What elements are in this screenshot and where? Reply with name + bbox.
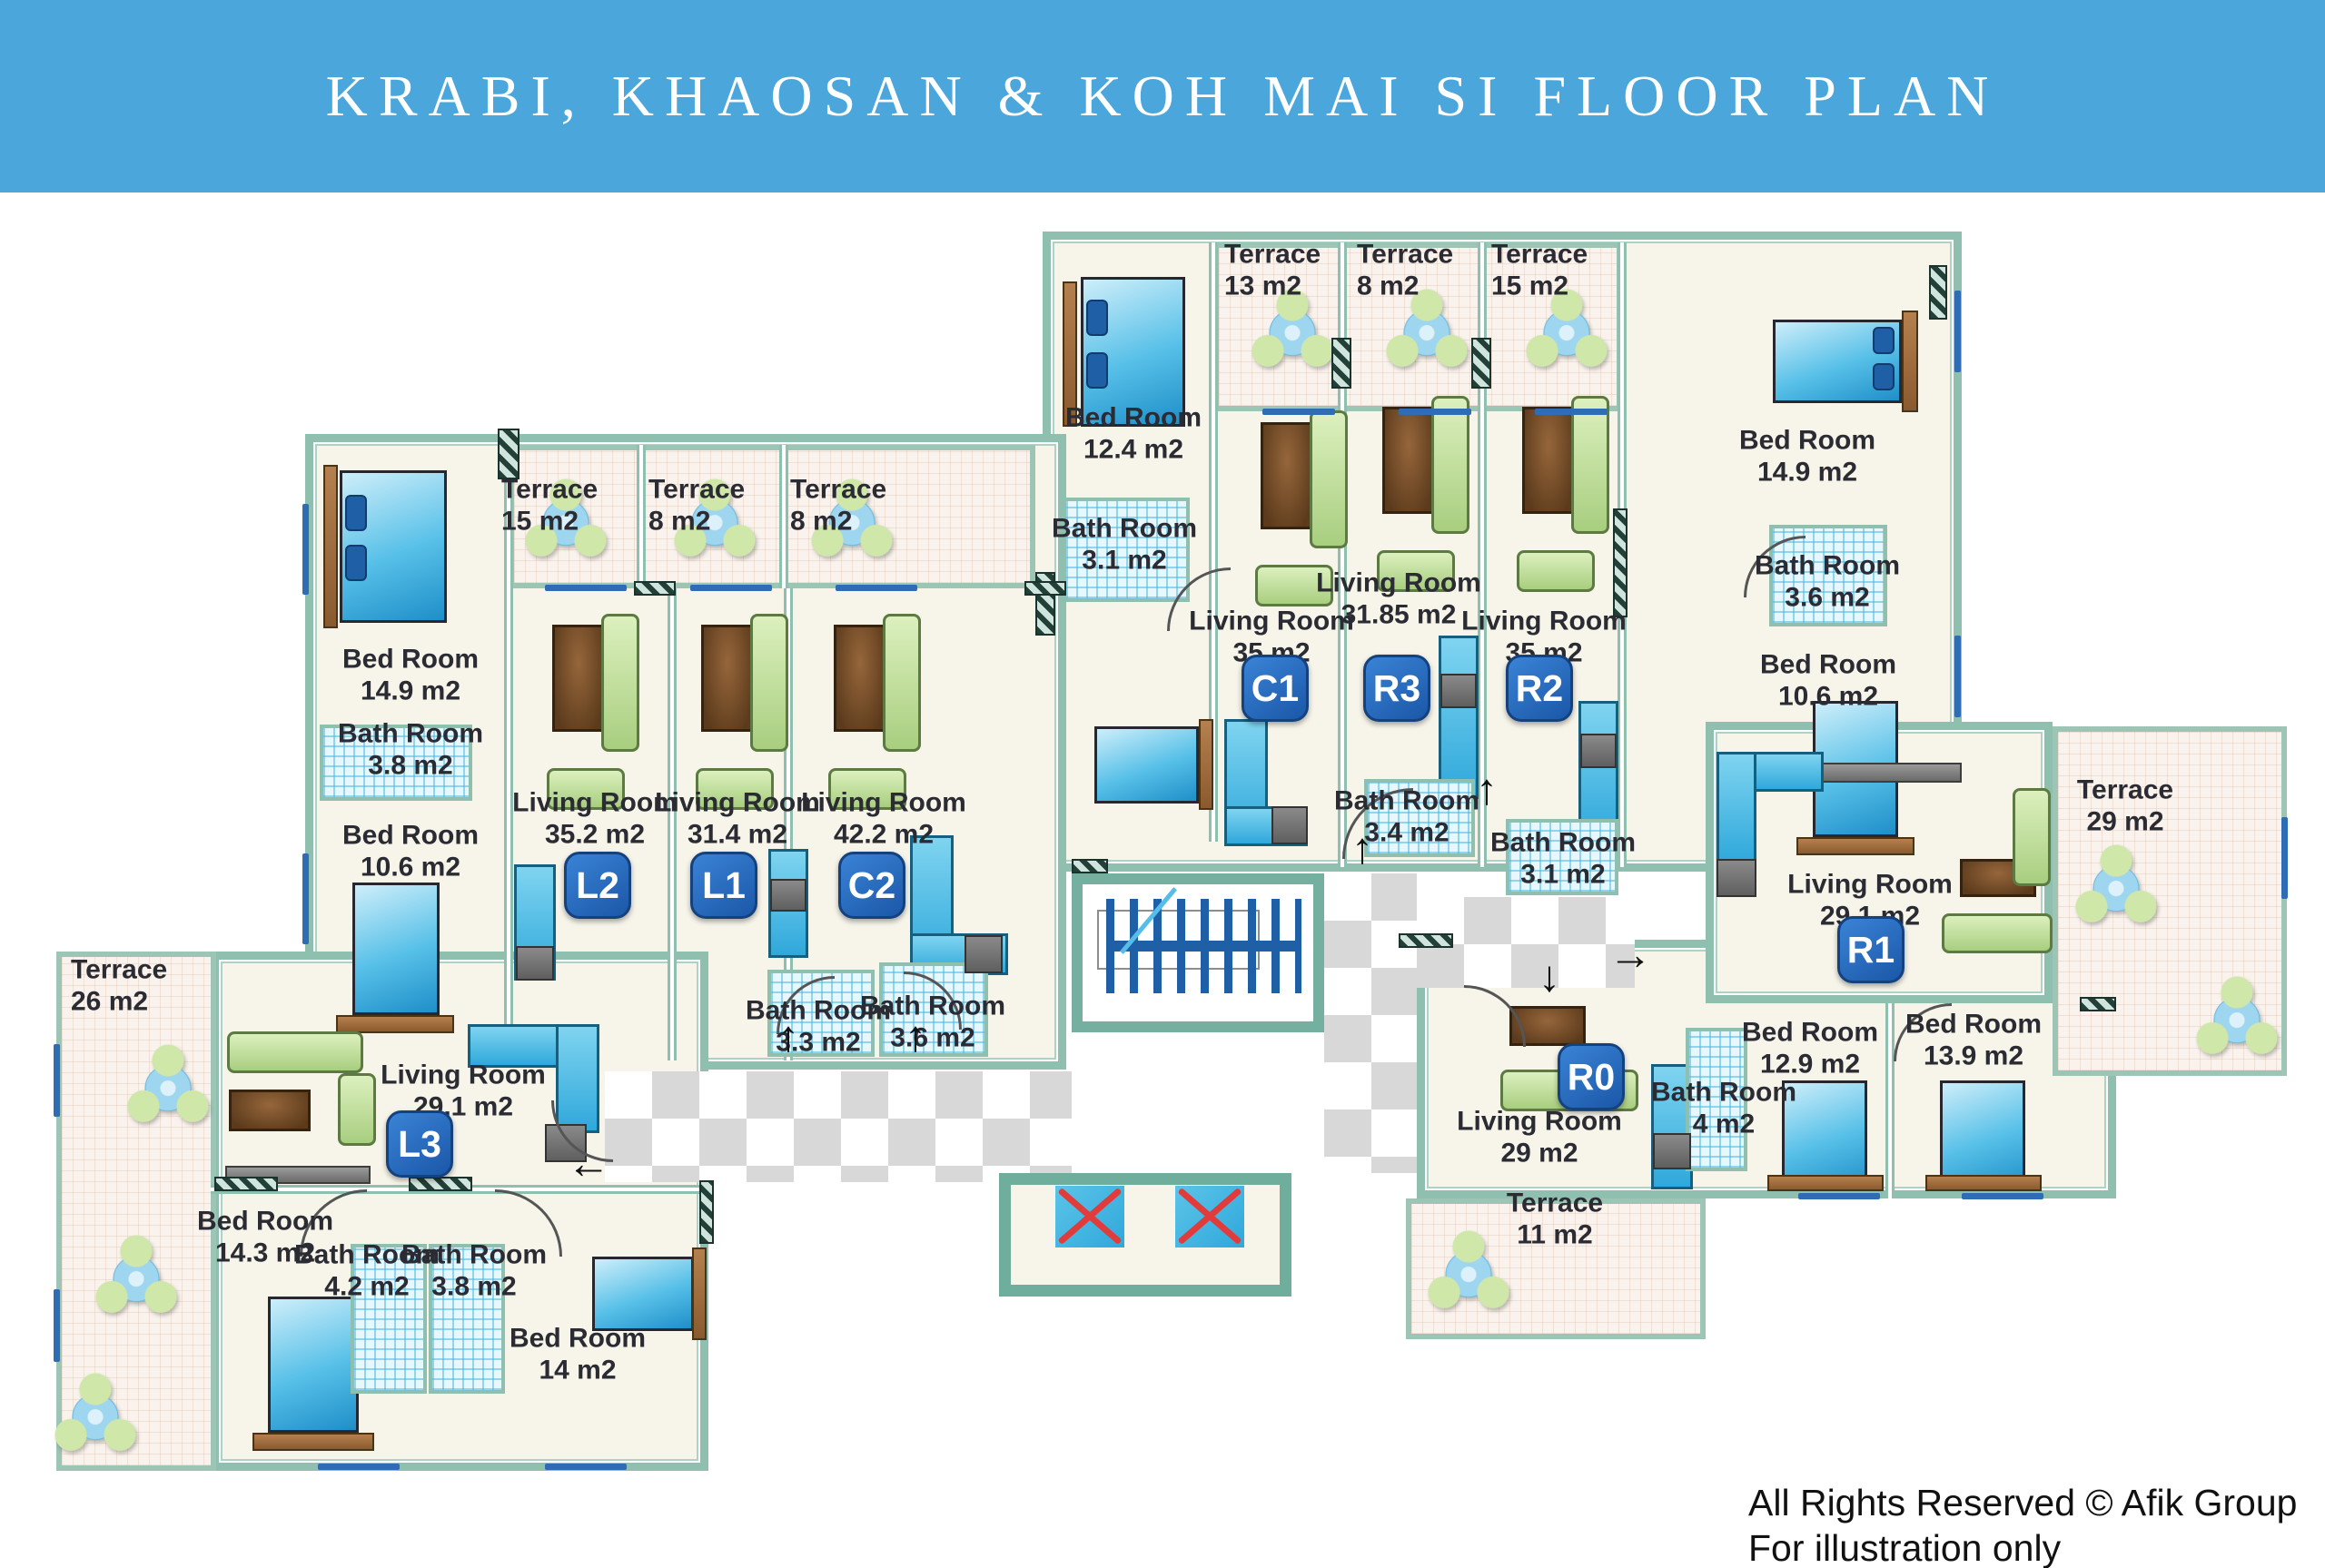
label-terrace-29: Terrace 29 m2: [2077, 774, 2173, 839]
window: [1962, 1193, 2043, 1199]
entrance-arrow-up-icon: ↑: [777, 1012, 799, 1062]
wall-hatch: [409, 1177, 472, 1191]
room-name: Terrace: [71, 954, 167, 986]
room-area: 8 m2: [1357, 271, 1419, 302]
room-area: 10.6 m2: [1778, 681, 1878, 713]
label-bathroom-3-1-r2: Bath Room 3.1 m2: [1490, 827, 1636, 892]
loveseat-icon: [338, 1073, 376, 1146]
label-bedroom-10-6-right: Bed Room 10.6 m2: [1760, 649, 1896, 714]
pillow: [1086, 352, 1108, 389]
window: [302, 853, 309, 944]
stair-rail: [1110, 941, 1297, 952]
pillow: [345, 545, 367, 581]
wall-hatch: [699, 1180, 714, 1244]
illustration-note: For illustration only: [1748, 1525, 2297, 1568]
wall-hatch: [214, 1177, 278, 1191]
wall: [779, 445, 788, 588]
wall-hatch: [1024, 581, 1066, 596]
room-name: Terrace: [1224, 239, 1321, 271]
window: [318, 1464, 400, 1470]
label-bathroom-3-6-c2: Bath Room 3.6 m2: [860, 991, 1005, 1055]
room-area: 4.2 m2: [324, 1271, 409, 1303]
label-terrace-l2: Terrace 15 m2: [501, 474, 598, 538]
unit-badge-r1: R1: [1837, 916, 1905, 983]
headboard: [692, 1247, 707, 1340]
pillow: [1873, 363, 1895, 390]
room-area: 13 m2: [1224, 271, 1301, 302]
stove-icon: [770, 879, 806, 912]
sofa-icon: [227, 1031, 363, 1073]
corridor-checker-main: [605, 1071, 1072, 1182]
sofa-icon: [1571, 396, 1609, 534]
room-name: Living Room: [801, 787, 966, 819]
wall-hatch: [1613, 508, 1627, 617]
window: [1262, 409, 1335, 415]
floor-plan: Terrace 13 m2 Terrace 8 m2 Terrace 15 m2…: [0, 0, 2325, 1568]
window: [836, 585, 917, 591]
room-area: 42.2 m2: [834, 819, 934, 851]
room-name: Bed Room: [1742, 1017, 1878, 1049]
room-name: Terrace: [501, 474, 598, 506]
room-name: Bed Room: [1760, 649, 1896, 681]
room-area: 3.4 m2: [1364, 817, 1449, 849]
headboard: [323, 465, 338, 628]
room-area: 14.9 m2: [361, 676, 460, 707]
room-area: 12.4 m2: [1083, 434, 1183, 466]
plant-icon: [54, 1373, 136, 1455]
headboard: [1796, 837, 1914, 855]
room-name: Bath Room: [1052, 513, 1197, 545]
room-name: Living Room: [512, 787, 678, 819]
elevator-icon: [1055, 1186, 1124, 1247]
coffee-table: [229, 1090, 311, 1131]
unit-badge-l2: L2: [564, 852, 631, 919]
headboard: [1902, 311, 1918, 412]
stove-icon: [965, 935, 1003, 973]
room-area: 4 m2: [1693, 1109, 1755, 1140]
window: [1399, 409, 1471, 415]
room-name: Terrace: [790, 474, 886, 506]
coffee-table: [552, 625, 605, 732]
room-area: 3.1 m2: [1520, 859, 1605, 891]
room-name: Bath Room: [1651, 1077, 1796, 1109]
room-area: 31.85 m2: [1341, 599, 1457, 631]
label-bedroom-14-9-right: Bed Room 14.9 m2: [1739, 425, 1875, 489]
label-bathroom-3-8-left: Bath Room 3.8 m2: [338, 718, 483, 783]
plant-icon: [95, 1235, 177, 1317]
room-name: Bath Room: [860, 991, 1005, 1022]
copyright-line: All Rights Reserved © Afik Group: [1748, 1480, 2297, 1525]
room-name: Living Room: [1461, 606, 1627, 637]
unit-badge-c1: C1: [1242, 655, 1309, 722]
loveseat-icon: [1517, 550, 1595, 592]
entrance-arrow-up-icon: ↑: [1351, 824, 1373, 874]
wall-hatch: [1929, 265, 1947, 320]
sink-icon: [1717, 859, 1756, 897]
coffee-table: [1382, 407, 1435, 514]
room-name: Bath Room: [1755, 550, 1900, 582]
room-area: 8 m2: [790, 506, 852, 537]
label-living-l2: Living Room 35.2 m2: [512, 787, 678, 852]
bed-icon: [352, 883, 440, 1015]
room-name: Bed Room: [1739, 425, 1875, 457]
window: [2281, 817, 2288, 899]
window: [1535, 409, 1608, 415]
window: [54, 1289, 60, 1362]
room-name: Bed Room: [1905, 1009, 2042, 1040]
plant-icon: [127, 1044, 209, 1126]
room-name: Terrace: [1357, 239, 1453, 271]
plant-icon: [1428, 1230, 1509, 1312]
label-terrace-c2: Terrace 8 m2: [790, 474, 886, 538]
room-name: Bath Room: [401, 1239, 547, 1271]
room-area: 29 m2: [2086, 806, 2163, 838]
unit-badge-l3: L3: [386, 1110, 453, 1178]
label-bedroom-12-4: Bed Room 12.4 m2: [1065, 402, 1202, 467]
plant-icon: [2075, 844, 2157, 926]
stove-icon: [516, 946, 554, 981]
room-name: Terrace: [2077, 774, 2173, 806]
sofa-icon: [1310, 410, 1348, 548]
plant-icon: [2196, 976, 2278, 1058]
bed-icon: [268, 1297, 359, 1433]
label-living-c2: Living Room 42.2 m2: [801, 787, 966, 852]
room-area: 26 m2: [71, 986, 148, 1018]
sofa-icon: [601, 614, 639, 752]
unit-badge-r3: R3: [1363, 655, 1430, 722]
room-area: 3.8 m2: [431, 1271, 516, 1303]
room-area: 11 m2: [1517, 1219, 1592, 1251]
label-terrace-11: Terrace 11 m2: [1507, 1188, 1603, 1252]
entrance-arrow-up-icon: ↑: [1476, 765, 1498, 815]
unit-badge-c2: C2: [838, 852, 905, 919]
label-terrace-26: Terrace 26 m2: [71, 954, 167, 1019]
label-terrace-r3: Terrace 8 m2: [1357, 239, 1453, 303]
sofa-icon: [1942, 913, 2053, 953]
room-area: 35.2 m2: [545, 819, 645, 851]
copyright: All Rights Reserved © Afik Group For ill…: [1748, 1480, 2297, 1568]
window: [302, 504, 309, 595]
room-name: Living Room: [1316, 567, 1481, 599]
elevator-shaft: [999, 1173, 1291, 1297]
wall-hatch: [634, 581, 676, 596]
bed-icon: [1094, 726, 1199, 804]
entrance-arrow-left-icon: ←: [567, 1139, 610, 1189]
room-area: 14.9 m2: [1757, 457, 1857, 488]
sofa-icon: [1431, 396, 1469, 534]
label-bathroom-3-8-l3: Bath Room 3.8 m2: [401, 1239, 547, 1304]
coffee-table: [1522, 407, 1575, 514]
coffee-table: [834, 625, 886, 732]
room-area: 15 m2: [1491, 271, 1568, 302]
label-bedroom-14: Bed Room 14 m2: [510, 1323, 646, 1387]
room-area: 3.8 m2: [368, 750, 452, 782]
pillow: [1873, 327, 1895, 354]
entrance-arrow-right-icon: →: [1608, 931, 1652, 981]
room-area: 8 m2: [648, 506, 710, 537]
room-area: 31.4 m2: [688, 819, 787, 851]
label-bathroom-3-1-left: Bath Room 3.1 m2: [1052, 513, 1197, 577]
room-name: Living Room: [381, 1060, 546, 1091]
headboard: [1767, 1175, 1884, 1191]
room-name: Terrace: [648, 474, 745, 506]
label-terrace-c1: Terrace 13 m2: [1224, 239, 1321, 303]
wall-hatch: [1471, 338, 1491, 389]
room-name: Bath Room: [338, 718, 483, 750]
room-area: 29 m2: [1500, 1138, 1578, 1169]
headboard: [336, 1015, 454, 1033]
room-area: 12.9 m2: [1760, 1049, 1860, 1080]
room-name: Bath Room: [1334, 785, 1479, 817]
room-area: 3.1 m2: [1082, 545, 1166, 577]
corridor-checker-right: [1324, 873, 1417, 1173]
window: [1954, 636, 1961, 717]
room-name: Bed Room: [197, 1206, 333, 1238]
headboard: [1199, 719, 1213, 810]
wall-hatch: [1072, 859, 1108, 873]
room-name: Bath Room: [1490, 827, 1636, 859]
label-terrace-r2: Terrace 15 m2: [1491, 239, 1588, 303]
room-name: Terrace: [1491, 239, 1588, 271]
wall-hatch: [498, 429, 519, 479]
label-bedroom-12-9: Bed Room 12.9 m2: [1742, 1017, 1878, 1081]
label-terrace-l1: Terrace 8 m2: [648, 474, 745, 538]
stove-icon: [1271, 806, 1308, 844]
kitchen-counter: [1717, 752, 1756, 864]
room-area: 10.6 m2: [361, 852, 460, 883]
entrance-arrow-down-icon: ↓: [1538, 952, 1560, 1002]
wall: [1338, 242, 1347, 867]
room-name: Terrace: [1507, 1188, 1603, 1219]
unit-badge-r0: R0: [1558, 1043, 1625, 1110]
coffee-table: [701, 625, 754, 732]
label-bathroom-4: Bath Room 4 m2: [1651, 1077, 1796, 1141]
room-area: 13.9 m2: [1924, 1040, 2023, 1072]
tv-cabinet: [1816, 763, 1962, 783]
room-name: Bed Room: [1065, 402, 1202, 434]
room-name: Bed Room: [510, 1323, 646, 1355]
entrance-arrow-up-icon: ↑: [905, 1012, 926, 1062]
headboard: [252, 1433, 374, 1451]
window: [1954, 291, 1961, 372]
coffee-table: [1261, 422, 1313, 529]
wall-hatch: [2080, 997, 2116, 1011]
wall-hatch: [1399, 933, 1453, 948]
room-area: 15 m2: [501, 506, 579, 537]
sofa-icon: [750, 614, 788, 752]
elevator-icon: [1175, 1186, 1244, 1247]
bed-icon: [592, 1257, 694, 1331]
label-living-l1: Living Room 31.4 m2: [655, 787, 820, 852]
loveseat-icon: [2013, 788, 2051, 886]
room-name: Bed Room: [342, 644, 479, 676]
label-bathroom-3-6-right: Bath Room 3.6 m2: [1755, 550, 1900, 615]
room-area: 3.6 m2: [1785, 582, 1869, 614]
label-living-r3: Living Room 31.85 m2: [1316, 567, 1481, 632]
window: [545, 585, 627, 591]
window: [545, 1464, 627, 1470]
room-area: 14 m2: [539, 1355, 616, 1386]
unit-badge-l1: L1: [690, 852, 757, 919]
window: [54, 1044, 60, 1117]
room-name: Living Room: [655, 787, 820, 819]
label-bedroom-14-9-left: Bed Room 14.9 m2: [342, 644, 479, 708]
window: [1798, 1193, 1880, 1199]
sofa-icon: [883, 614, 921, 752]
stove-icon: [1580, 734, 1617, 768]
headboard: [1925, 1175, 2042, 1191]
room-area: 3.6 m2: [890, 1022, 975, 1054]
pillow: [345, 495, 367, 531]
pillow: [1086, 300, 1108, 336]
unit-badge-r2: R2: [1506, 655, 1573, 722]
room-name: Living Room: [1787, 869, 1953, 901]
wall: [637, 445, 646, 588]
floor-plan-screen: KRABI, KHAOSAN & KOH MAI SI FLOOR PLAN T…: [0, 0, 2325, 1568]
wall-hatch: [1331, 338, 1351, 389]
window: [690, 585, 772, 591]
label-bedroom-13-9: Bed Room 13.9 m2: [1905, 1009, 2042, 1073]
label-bedroom-10-6-left: Bed Room 10.6 m2: [342, 820, 479, 884]
label-living-r0: Living Room 29 m2: [1457, 1106, 1622, 1170]
room-name: Bed Room: [342, 820, 479, 852]
wall: [1885, 1003, 1895, 1198]
stove-icon: [1440, 674, 1477, 708]
